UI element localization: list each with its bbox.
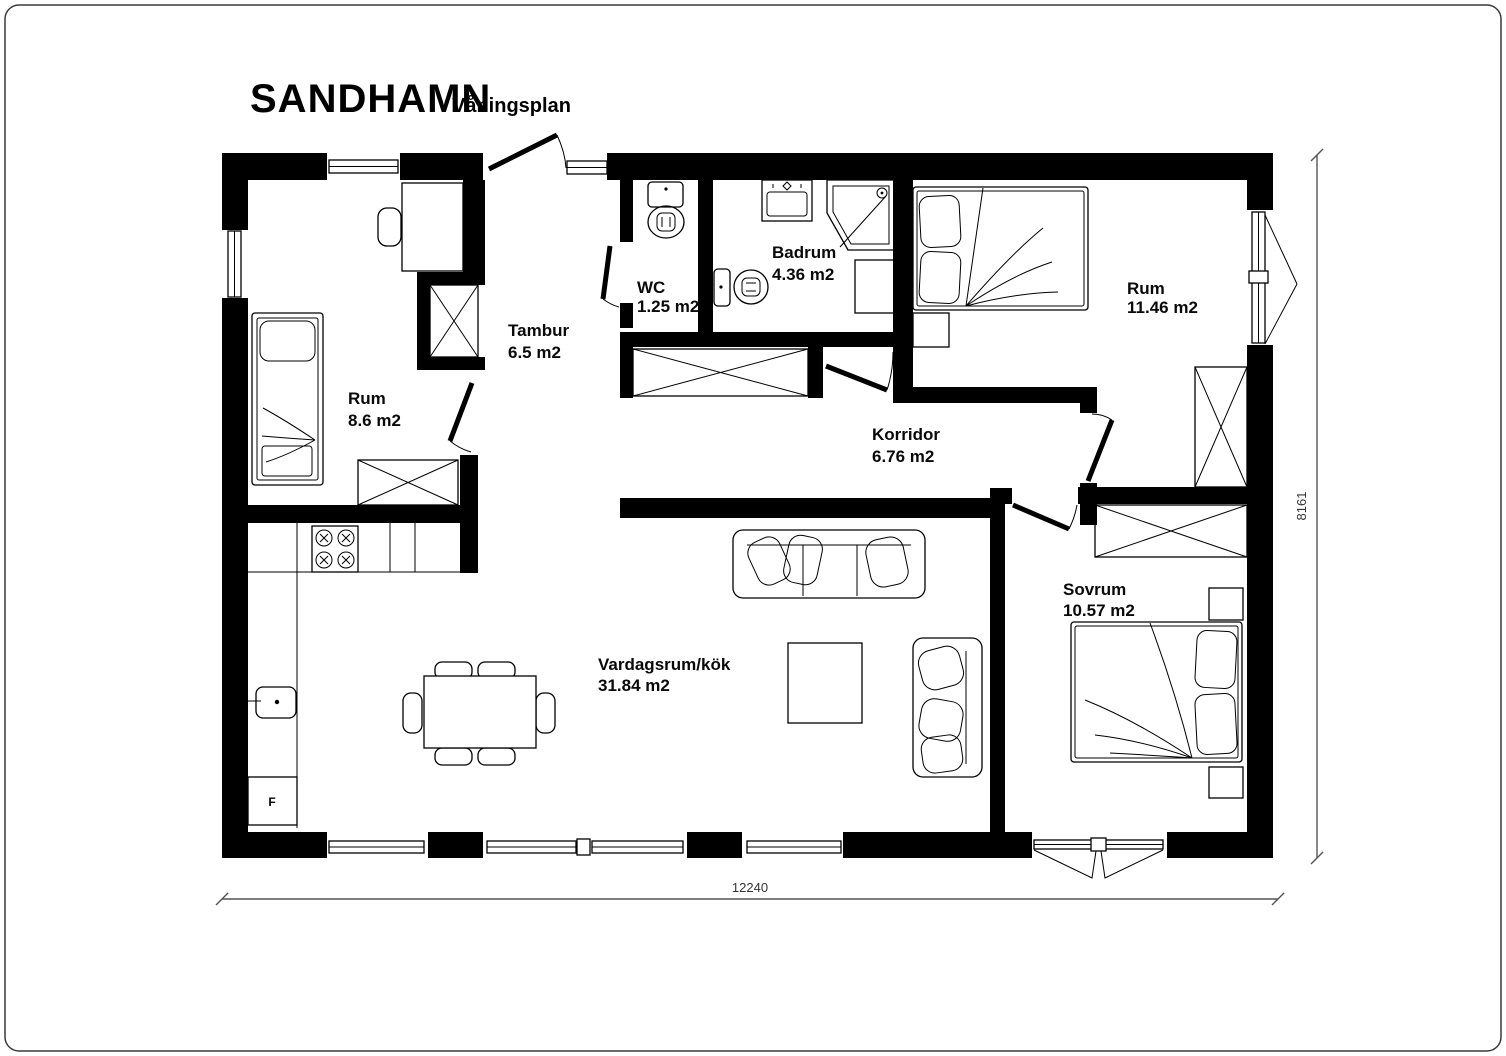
wardrobe-icon [430, 285, 478, 357]
sofa-two-seat-icon [913, 638, 982, 777]
bathroom-bench-icon [855, 260, 898, 313]
room-label-sovrum-area: 10.57 m2 [1063, 601, 1135, 620]
window-icon [228, 231, 241, 297]
room-label-rum-small-name: Rum [348, 389, 386, 408]
wc-door-icon [603, 246, 619, 307]
chair-icon [378, 208, 401, 246]
wardrobe-icon [633, 349, 808, 396]
room-door-icon [450, 383, 472, 452]
room-label-korridor-area: 6.76 m2 [872, 447, 934, 466]
room-label-korridor-name: Korridor [872, 425, 940, 444]
dimension-width-label: 12240 [732, 880, 768, 895]
window-icon [487, 841, 576, 853]
double-bed-icon [913, 187, 1088, 310]
window-icon [592, 841, 683, 853]
dimension-lines: 12240 8161 [216, 149, 1323, 905]
double-bed-icon [1071, 622, 1242, 762]
room-label-badrum-name: Badrum [772, 243, 836, 262]
dimension-height-label: 8161 [1294, 492, 1309, 521]
room-label-wc-name: WC [637, 278, 665, 297]
room-label-sovrum-name: Sovrum [1063, 580, 1126, 599]
window-mullion [577, 839, 590, 855]
washbasin-icon [762, 180, 812, 221]
wardrobe-icon [1095, 505, 1247, 557]
dining-set-icon [403, 662, 555, 765]
room-label-rum-small-area: 8.6 m2 [348, 411, 401, 430]
window-icon [1249, 212, 1297, 344]
window-icon [329, 160, 398, 173]
floorplan-drawing: SANDHAMN Våningsplan [0, 0, 1506, 1056]
nightstand-icon [1209, 767, 1243, 798]
toilet-icon [714, 269, 768, 306]
room-label-rum-large-area: 11.46 m2 [1127, 298, 1198, 317]
room-label-vardagsrum-name: Vardagsrum/kök [598, 655, 731, 674]
bedroom-door-icon [1013, 505, 1077, 529]
room2-door-icon [1088, 414, 1112, 481]
fridge-icon: F [248, 777, 297, 825]
plan-subtitle: Våningsplan [452, 94, 571, 117]
fridge-label: F [268, 795, 275, 809]
entrance-door-icon [489, 135, 566, 169]
sink-icon [248, 687, 296, 718]
window-icon [747, 841, 841, 853]
room-label-vardagsrum-area: 31.84 m2 [598, 676, 670, 695]
patio-double-door-icon [1034, 838, 1163, 878]
sofa-three-seat-icon [733, 530, 925, 598]
corner-shower-icon [827, 180, 895, 250]
nightstand-icon [913, 313, 949, 347]
entrance-sidelight-window-icon [567, 161, 607, 174]
wardrobe-icon [358, 460, 458, 505]
single-bed-icon [252, 313, 323, 485]
room-label-wc-area: 1.25 m2 [637, 297, 699, 316]
desk-icon [402, 183, 463, 271]
nightstand-icon [1209, 588, 1243, 620]
toilet-icon [648, 182, 684, 238]
floorplan-page: SANDHAMN Våningsplan [0, 0, 1506, 1056]
room-label-rum-large-name: Rum [1127, 279, 1165, 298]
room-label-tambur-name: Tambur [508, 321, 569, 340]
window-icon [329, 841, 424, 853]
stove-icon [312, 526, 358, 572]
room-label-badrum-area: 4.36 m2 [772, 265, 834, 284]
wardrobe-icon [1195, 367, 1247, 487]
room-label-tambur-area: 6.5 m2 [508, 343, 561, 362]
coffee-table-icon [788, 643, 862, 723]
corridor-door-icon [826, 352, 893, 390]
